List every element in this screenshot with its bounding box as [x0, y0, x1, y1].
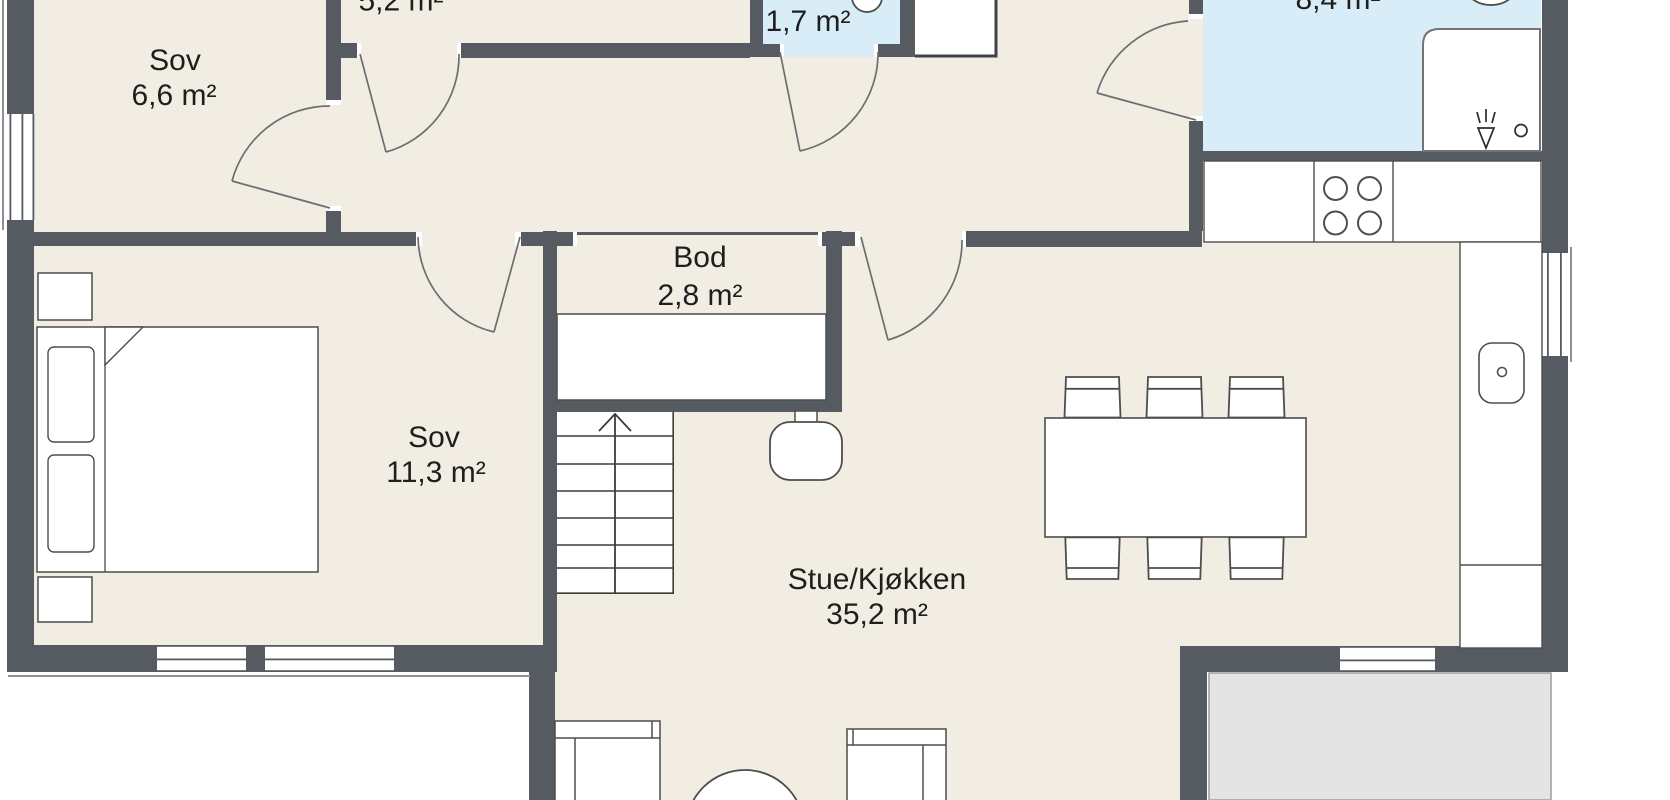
svg-text:2,8 m²: 2,8 m² — [657, 279, 742, 312]
svg-text:5,2 m²: 5,2 m² — [358, 0, 443, 18]
svg-text:Sov: Sov — [149, 44, 201, 77]
svg-text:Sov: Sov — [408, 421, 460, 454]
svg-text:6,6 m²: 6,6 m² — [131, 79, 216, 112]
svg-text:Stue/Kjøkken: Stue/Kjøkken — [788, 563, 966, 596]
svg-text:11,3 m²: 11,3 m² — [386, 456, 485, 489]
svg-text:8,4 m²: 8,4 m² — [1295, 0, 1380, 16]
svg-text:Bod: Bod — [673, 241, 726, 274]
svg-text:35,2 m²: 35,2 m² — [826, 598, 928, 631]
svg-text:1,7 m²: 1,7 m² — [765, 5, 850, 38]
